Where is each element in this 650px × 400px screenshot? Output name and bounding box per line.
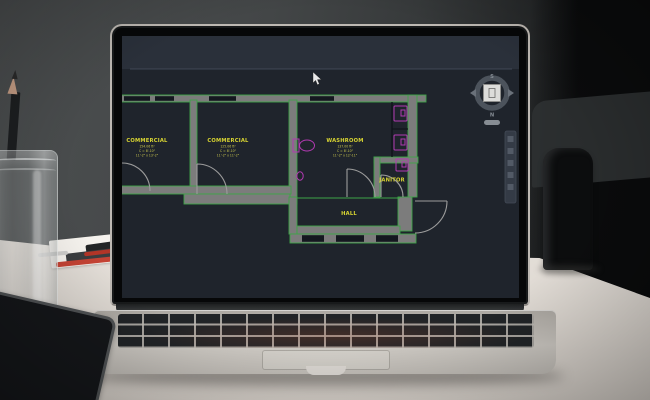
room-ceiling: C = 8'-10" [220,149,237,153]
pencil-lead [12,70,19,79]
room-label-commercial-left: COMMERCIAL [126,138,168,144]
navbar-tool-icon[interactable] [508,160,514,166]
wall-hall-left [289,197,297,234]
wall-right [408,95,417,197]
wall-bottom-b [184,194,290,204]
viewcube-face[interactable] [484,85,501,102]
laptop-lid-notch [306,366,346,375]
navbar-tool-icon[interactable] [508,184,514,190]
viewcube-home-pill[interactable] [484,120,500,125]
room-label-washroom: WASHROOM [326,138,363,144]
cad-toolbar[interactable] [122,36,519,69]
room-ceiling: C = 8'-10" [337,149,354,153]
black-bottle [543,148,593,270]
wall-left-mid [190,100,197,188]
room-ceiling: C = 8'-10" [139,149,156,153]
cad-canvas[interactable] [122,36,519,298]
navbar-tool-icon[interactable] [508,148,514,154]
navbar-tool-icon[interactable] [508,172,514,178]
wall-bottom-a [122,186,291,194]
wall-hall-bottom [297,226,400,234]
navbar-tool-icon[interactable] [508,136,514,142]
compass-bottom-letter[interactable]: N [490,113,494,119]
cad-application[interactable]: COMMERCIAL 154.06 ft² C = 8'-10" 11'-2" … [122,36,519,298]
jar-highlight [33,170,41,320]
laptop-keyboard [118,314,534,348]
room-label-commercial-center: COMMERCIAL [207,138,249,144]
pencil-tip [7,77,18,95]
room-dimensions: 11'-2" x 12'-11" [333,154,358,158]
room-label-hall: HALL [341,211,357,217]
navigation-bar[interactable] [505,131,516,203]
room-dimensions: 11'-2" x 13'-2" [136,154,159,158]
photo-scene: COMMERCIAL 154.06 ft² C = 8'-10" 11'-2" … [0,0,650,400]
bottle-shadow [538,264,600,274]
compass-top-letter[interactable]: S [490,74,494,80]
room-label-janitor: JANITOR [378,178,405,184]
room-dimensions: 11'-2" x 11'-2" [217,154,240,158]
laptop-screen: COMMERCIAL 154.06 ft² C = 8'-10" 11'-2" … [122,36,519,298]
